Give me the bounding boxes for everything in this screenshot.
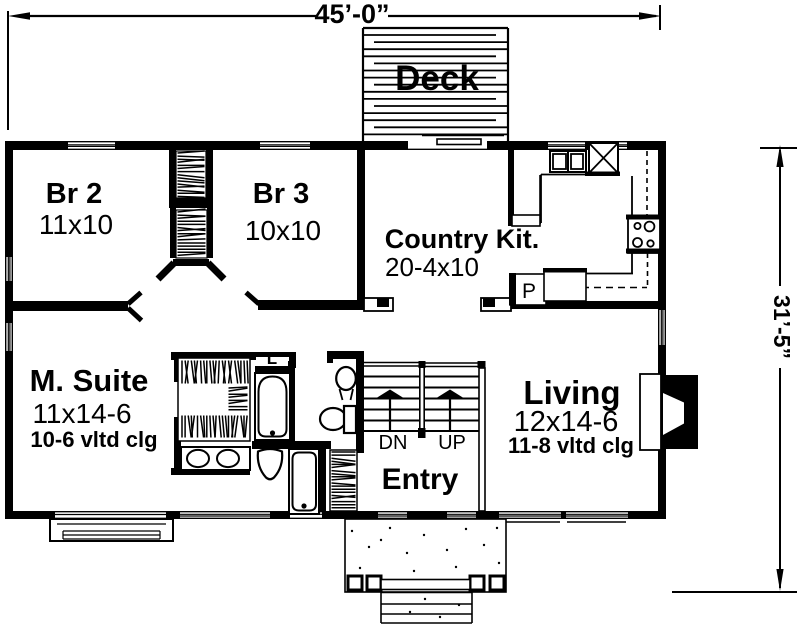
svg-text:UP: UP [438, 432, 466, 454]
svg-text:Br 3: Br 3 [253, 178, 309, 210]
svg-text:45’-0”: 45’-0” [314, 0, 389, 29]
svg-text:L: L [267, 349, 277, 368]
svg-text:20-4x10: 20-4x10 [385, 252, 479, 282]
svg-text:DN: DN [379, 432, 408, 454]
svg-text:10x10: 10x10 [245, 215, 321, 246]
svg-text:P: P [522, 280, 536, 303]
svg-text:M. Suite: M. Suite [30, 363, 149, 398]
svg-text:Entry: Entry [382, 463, 459, 496]
svg-text:11-8 vltd clg: 11-8 vltd clg [508, 433, 634, 458]
svg-text:Country Kit.: Country Kit. [385, 224, 540, 254]
svg-text:10-6 vltd clg: 10-6 vltd clg [30, 427, 157, 452]
svg-text:11x10: 11x10 [39, 209, 113, 240]
svg-text:31’-5”: 31’-5” [769, 295, 795, 359]
svg-text:11x14-6: 11x14-6 [32, 398, 131, 429]
svg-text:Br 2: Br 2 [46, 178, 102, 210]
svg-text:Deck: Deck [395, 59, 479, 98]
